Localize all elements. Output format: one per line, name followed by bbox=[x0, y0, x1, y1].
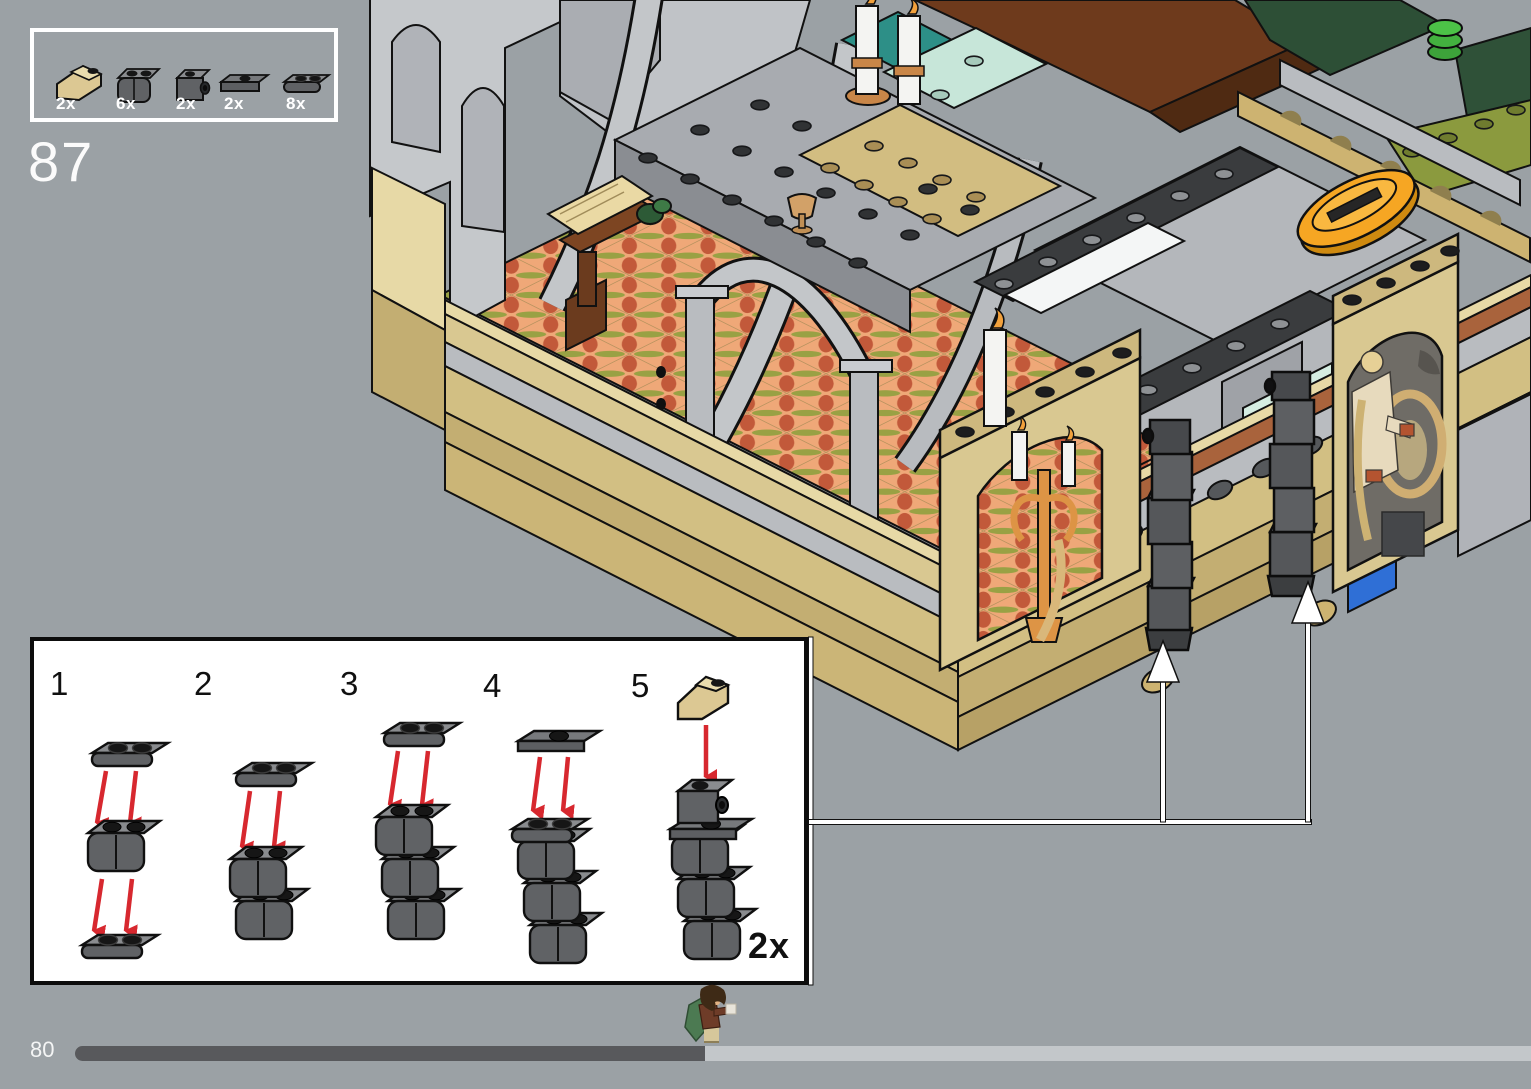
dark-column-left bbox=[1143, 420, 1194, 650]
substep-1-diagram bbox=[82, 743, 168, 958]
substep-number: 4 bbox=[483, 669, 501, 702]
goblet-icon bbox=[788, 194, 816, 234]
substep-number: 5 bbox=[631, 669, 649, 702]
substep-2-diagram bbox=[230, 763, 312, 939]
progress-bar-remaining bbox=[705, 1046, 1531, 1061]
step-number: 87 bbox=[28, 134, 94, 190]
dark-gray-rounded-plate-icon bbox=[284, 75, 329, 92]
substep-number: 3 bbox=[340, 667, 358, 700]
page-number: 80 bbox=[30, 1037, 54, 1063]
parts-callout-box: 2x 6x 2x 2x 8x bbox=[30, 28, 338, 122]
progress-bar-completed bbox=[75, 1046, 705, 1061]
substep-5-diagram bbox=[670, 677, 756, 959]
part-count: 6x bbox=[104, 94, 148, 114]
frodo-minifigure-icon bbox=[681, 983, 743, 1049]
part-count: 2x bbox=[164, 94, 208, 114]
substep-4-diagram bbox=[512, 731, 602, 963]
dark-gray-jumper-plate-icon bbox=[221, 75, 268, 91]
subassembly-box: 1 2 3 4 5 2x bbox=[30, 637, 808, 985]
mural-wall bbox=[1333, 234, 1459, 592]
part-count: 2x bbox=[44, 94, 88, 114]
part-count: 8x bbox=[274, 94, 318, 114]
substep-3-diagram bbox=[376, 723, 460, 939]
subassembly-diagram bbox=[34, 641, 804, 981]
substep-number: 1 bbox=[50, 667, 68, 700]
part-count: 2x bbox=[212, 94, 256, 114]
subassembly-quantity: 2x bbox=[748, 925, 790, 967]
substep-number: 2 bbox=[194, 667, 212, 700]
green-round-plates bbox=[1428, 20, 1462, 60]
